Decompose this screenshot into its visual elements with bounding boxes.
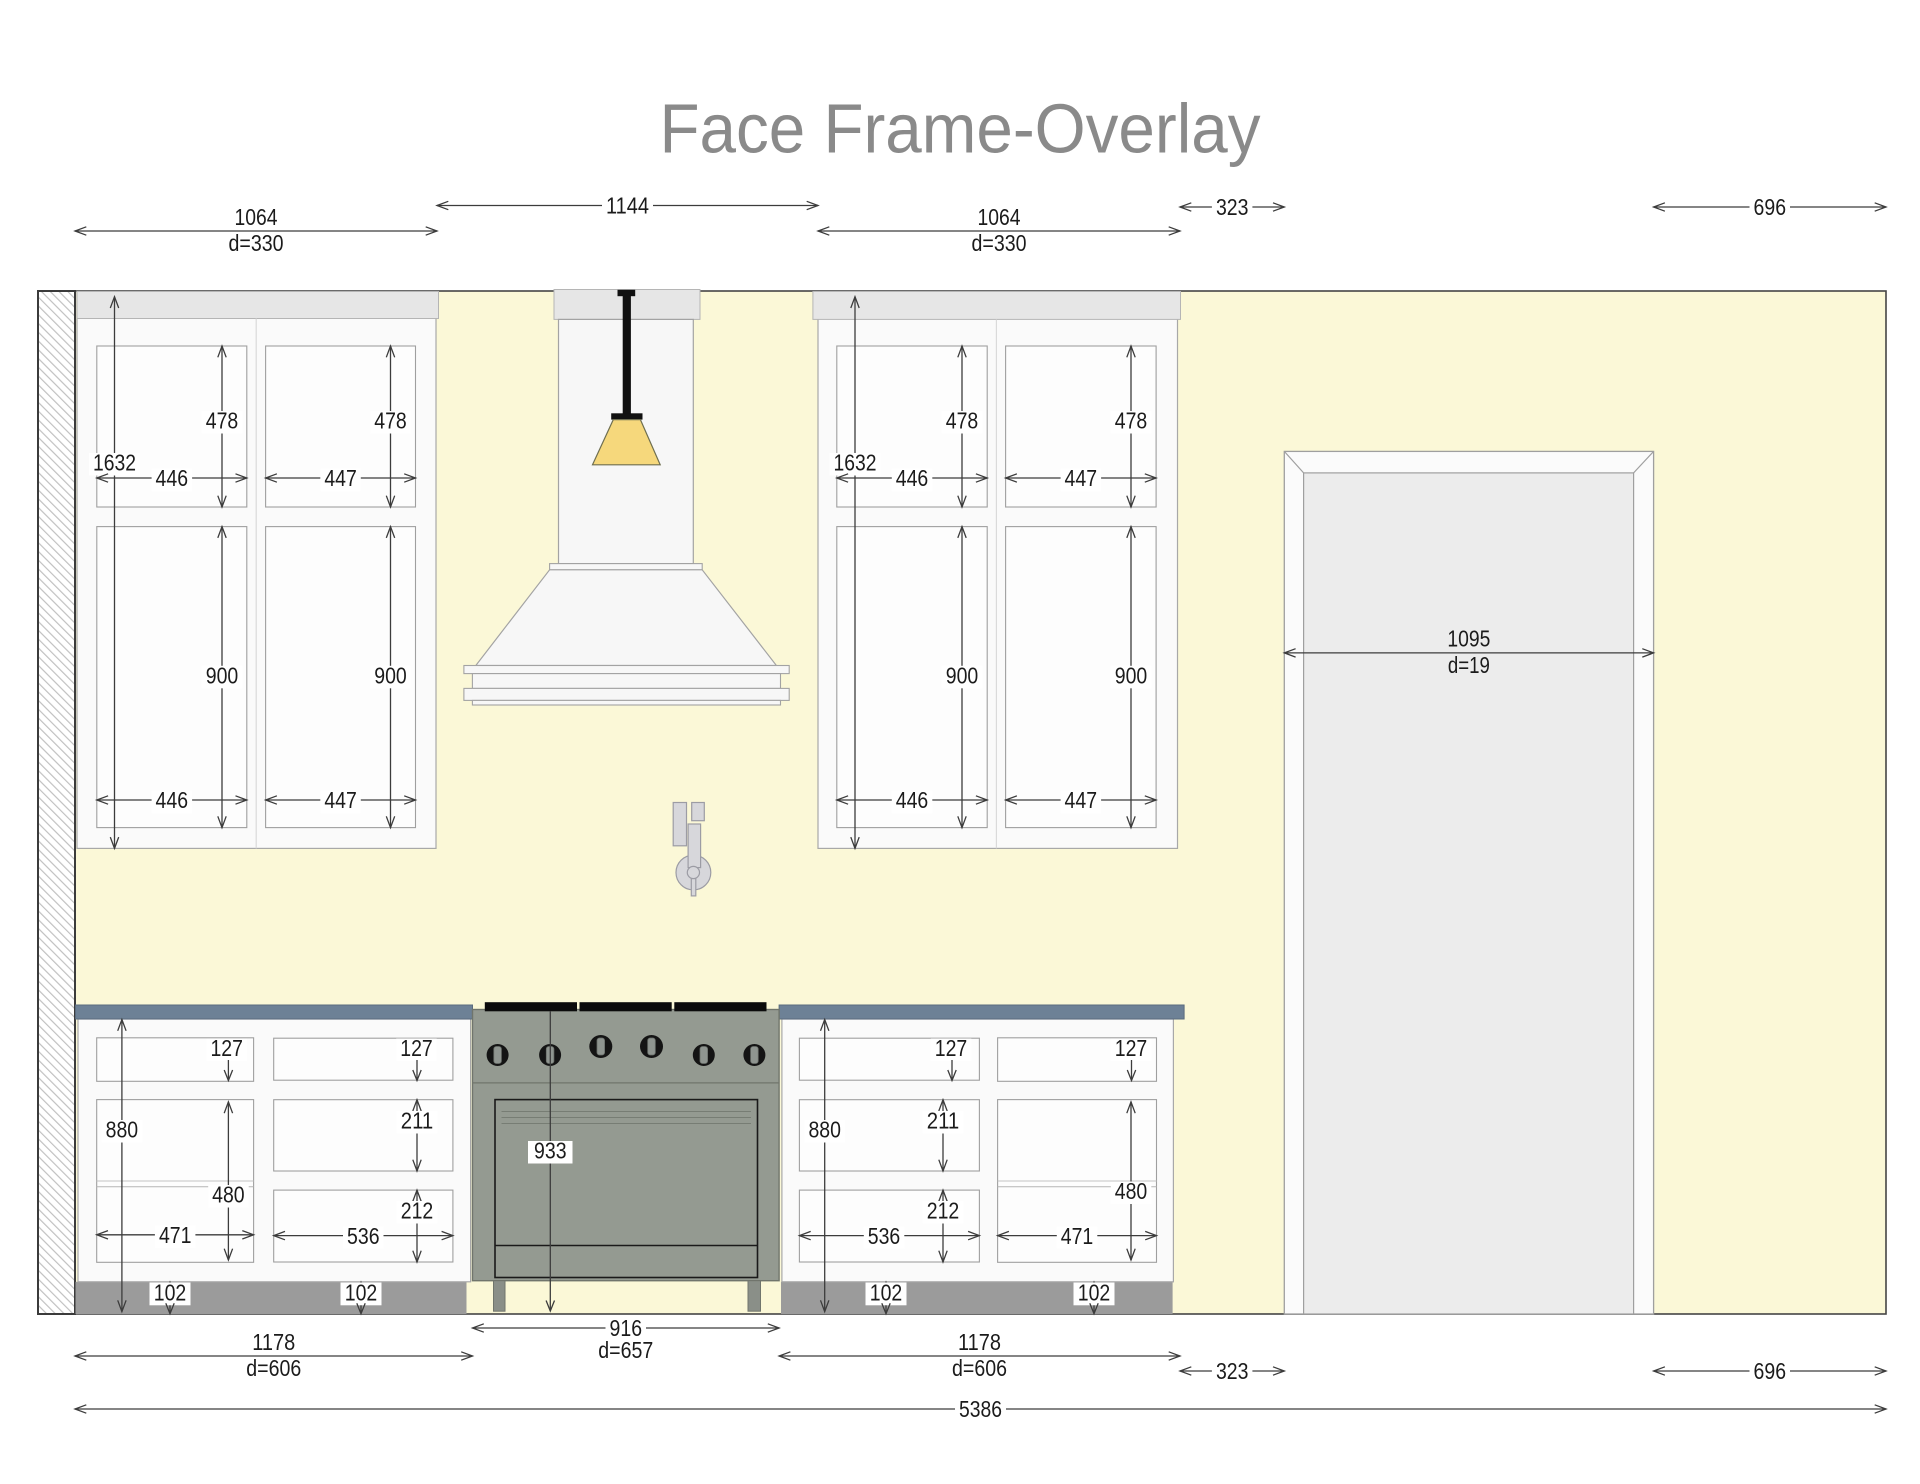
svg-text:127: 127 xyxy=(935,1035,968,1061)
svg-text:127: 127 xyxy=(210,1035,243,1061)
svg-text:127: 127 xyxy=(400,1035,433,1061)
svg-text:446: 446 xyxy=(896,787,929,813)
svg-text:d=330: d=330 xyxy=(972,230,1027,256)
svg-text:102: 102 xyxy=(1078,1280,1111,1306)
svg-text:1178: 1178 xyxy=(958,1329,1001,1355)
svg-text:536: 536 xyxy=(347,1223,380,1249)
svg-text:471: 471 xyxy=(159,1222,192,1248)
svg-text:d=330: d=330 xyxy=(229,230,284,256)
svg-text:1064: 1064 xyxy=(978,204,1021,230)
svg-text:1632: 1632 xyxy=(93,450,136,476)
svg-text:478: 478 xyxy=(946,408,979,434)
svg-text:102: 102 xyxy=(870,1280,903,1306)
svg-text:1632: 1632 xyxy=(834,450,877,476)
svg-text:102: 102 xyxy=(345,1280,378,1306)
svg-text:212: 212 xyxy=(927,1198,960,1224)
svg-text:471: 471 xyxy=(1061,1223,1094,1249)
svg-text:933: 933 xyxy=(534,1138,567,1164)
svg-text:d=19: d=19 xyxy=(1448,652,1490,678)
svg-text:212: 212 xyxy=(401,1198,434,1224)
svg-text:880: 880 xyxy=(106,1117,139,1143)
svg-text:478: 478 xyxy=(206,408,239,434)
svg-text:480: 480 xyxy=(1115,1178,1148,1204)
svg-text:900: 900 xyxy=(946,662,979,688)
svg-text:Face Frame-Overlay: Face Frame-Overlay xyxy=(660,90,1261,168)
svg-text:478: 478 xyxy=(1115,408,1148,434)
svg-text:1144: 1144 xyxy=(606,193,649,219)
svg-text:211: 211 xyxy=(927,1108,960,1134)
svg-text:900: 900 xyxy=(374,662,407,688)
svg-text:447: 447 xyxy=(324,465,357,491)
svg-text:900: 900 xyxy=(1115,662,1148,688)
svg-text:447: 447 xyxy=(1065,787,1098,813)
svg-text:696: 696 xyxy=(1754,194,1787,220)
svg-text:446: 446 xyxy=(156,465,189,491)
svg-text:900: 900 xyxy=(206,662,239,688)
svg-text:323: 323 xyxy=(1216,194,1249,220)
svg-text:880: 880 xyxy=(808,1117,841,1143)
svg-text:480: 480 xyxy=(212,1182,245,1208)
svg-text:536: 536 xyxy=(868,1223,901,1249)
svg-text:1064: 1064 xyxy=(235,204,278,230)
svg-text:446: 446 xyxy=(156,787,189,813)
svg-text:447: 447 xyxy=(1065,465,1098,491)
svg-text:478: 478 xyxy=(374,408,407,434)
svg-text:446: 446 xyxy=(896,465,929,491)
svg-text:5386: 5386 xyxy=(959,1396,1002,1422)
svg-text:127: 127 xyxy=(1115,1035,1148,1061)
svg-text:1178: 1178 xyxy=(252,1329,295,1355)
svg-text:d=606: d=606 xyxy=(246,1355,301,1381)
svg-text:447: 447 xyxy=(324,787,357,813)
svg-text:323: 323 xyxy=(1216,1358,1249,1384)
svg-text:696: 696 xyxy=(1754,1358,1787,1384)
svg-text:d=657: d=657 xyxy=(598,1337,653,1363)
svg-text:102: 102 xyxy=(154,1280,187,1306)
svg-text:d=606: d=606 xyxy=(952,1355,1007,1381)
svg-text:211: 211 xyxy=(401,1108,434,1134)
svg-text:1095: 1095 xyxy=(1447,626,1490,652)
